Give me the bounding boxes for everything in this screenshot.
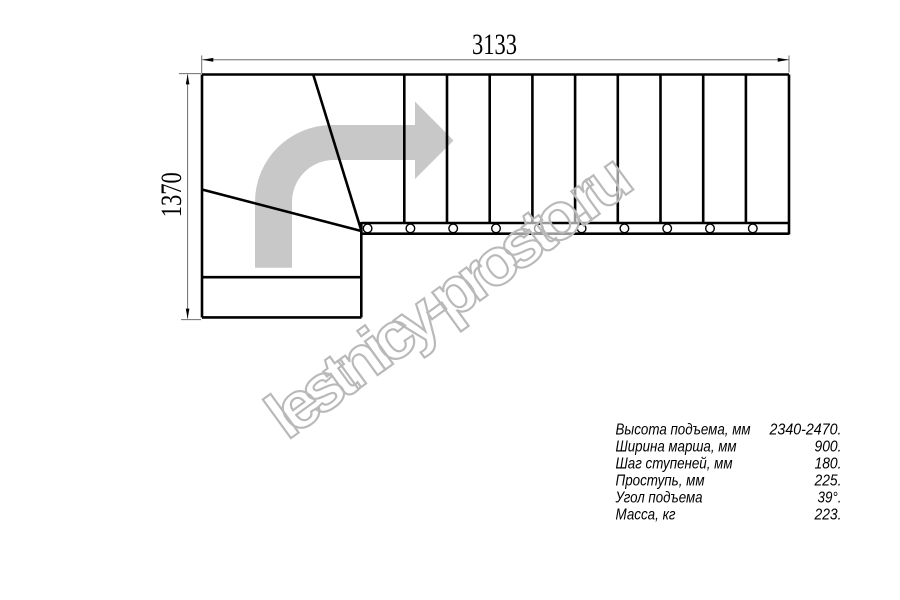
- svg-text:Масса, кг: Масса, кг: [616, 506, 676, 523]
- svg-text:180.: 180.: [815, 455, 842, 472]
- svg-text:900.: 900.: [815, 438, 842, 455]
- svg-text:3133: 3133: [472, 28, 517, 61]
- svg-text:Высота подъема, мм: Высота подъема, мм: [616, 421, 751, 438]
- svg-text:Ширина марша, мм: Ширина марша, мм: [616, 438, 737, 455]
- svg-text:223.: 223.: [814, 506, 842, 523]
- svg-text:Угол подъема: Угол подъема: [615, 489, 703, 506]
- svg-text:Шаг ступеней, мм: Шаг ступеней, мм: [616, 455, 733, 472]
- svg-text:225.: 225.: [814, 472, 842, 489]
- svg-text:39°.: 39°.: [818, 489, 842, 506]
- svg-text:1370: 1370: [155, 172, 188, 217]
- svg-text:Проступь, мм: Проступь, мм: [616, 472, 705, 489]
- svg-text:2340-2470.: 2340-2470.: [769, 421, 842, 438]
